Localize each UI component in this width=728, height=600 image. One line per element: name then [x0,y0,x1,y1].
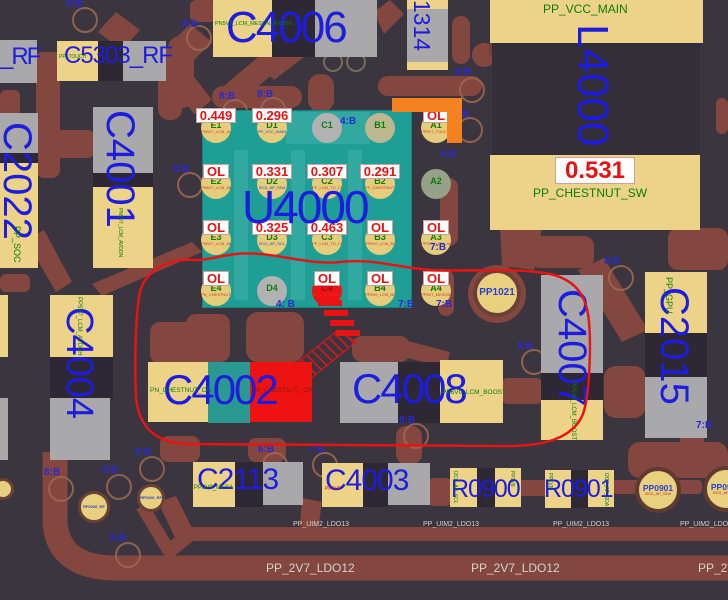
annotation-layer [0,0,728,600]
red-hatch-band [276,330,356,392]
red-annotation-circle [135,253,590,446]
pcb-board-view: PP1021 PP0901 I2C0_AP_SDA PP0901 I2C0_AP… [0,0,728,600]
orange-corner-marker [392,98,462,143]
